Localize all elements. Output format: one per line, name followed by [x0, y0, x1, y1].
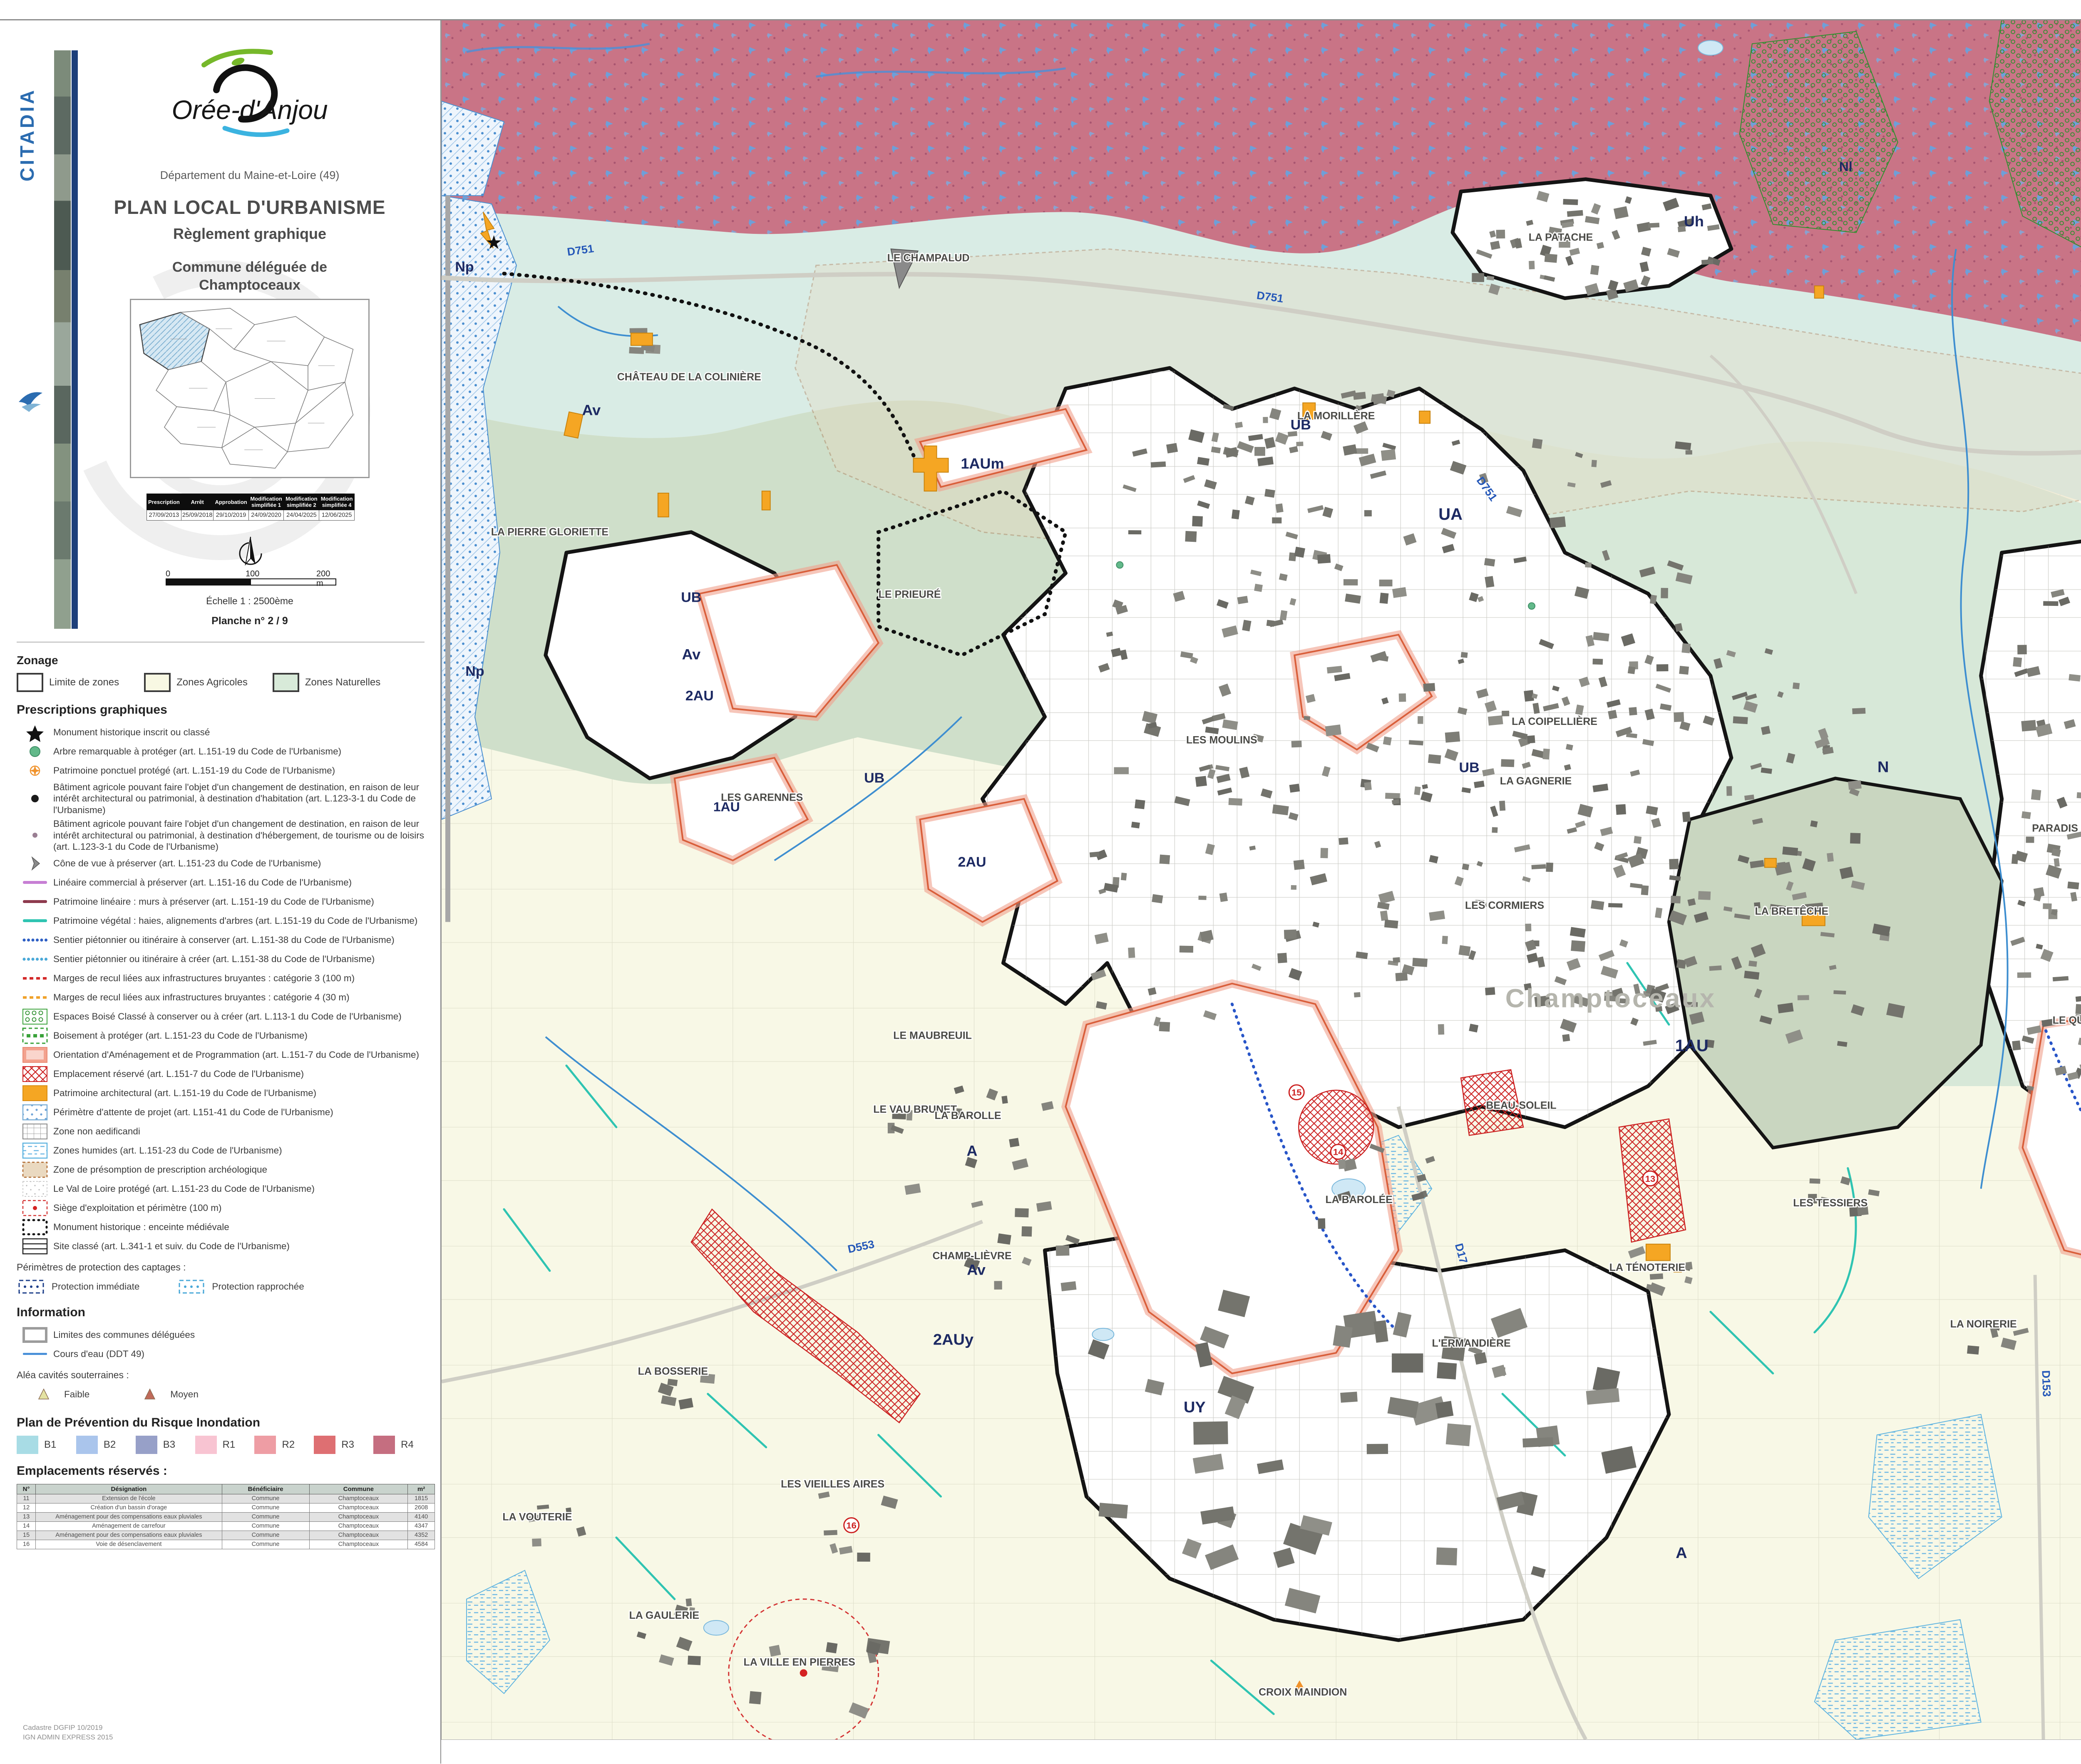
building — [532, 1538, 541, 1547]
building — [1641, 885, 1649, 895]
building — [1380, 593, 1389, 604]
legend-label: Sentier piétonnier ou itinéraire à créer… — [53, 952, 375, 966]
building — [1648, 223, 1659, 228]
map-label: Nl — [1839, 159, 1853, 174]
map-label: UY — [1184, 1398, 1206, 1416]
zonage-item: Limite de zones — [17, 673, 119, 692]
building — [1379, 580, 1393, 586]
building — [2011, 854, 2019, 864]
legend-label: Périmètre d'attente de projet (art. L151… — [53, 1105, 333, 1119]
building — [1131, 821, 1140, 828]
building — [667, 1379, 678, 1386]
scale-text: Échelle 1 : 2500ème — [92, 595, 408, 607]
building — [1193, 1422, 1228, 1445]
building — [1128, 948, 1135, 958]
building — [1591, 900, 1604, 910]
building — [1135, 799, 1145, 809]
emplacements-header: Emplacements réservés : — [17, 1464, 433, 1478]
map-label: LA BAROLÉE — [1325, 1194, 1392, 1206]
legend-symbol-box-er — [17, 1064, 53, 1084]
ppri-item: R2 — [254, 1436, 314, 1454]
map-label: D153 — [2039, 1370, 2053, 1397]
building — [1850, 833, 1860, 844]
building — [1166, 443, 1178, 454]
legend-item: Siège d'exploitation et périmètre (100 m… — [17, 1198, 433, 1218]
legend-item: Arbre remarquable à protéger (art. L.151… — [17, 742, 433, 761]
building — [1289, 784, 1300, 793]
building — [1527, 735, 1535, 743]
legend-symbol-box-archeo — [17, 1160, 53, 1179]
building — [1277, 953, 1287, 963]
legend-item: Patrimoine linéaire : murs à préserver (… — [17, 892, 433, 911]
legend-label: Emplacement réservé (art. L.151-7 du Cod… — [53, 1067, 304, 1081]
building — [1726, 786, 1732, 796]
legend-item: Zone de présomption de prescription arch… — [17, 1160, 433, 1179]
building — [1354, 992, 1361, 997]
legend-symbol-box-oap — [17, 1045, 53, 1064]
legend-item: Sentier piétonnier ou itinéraire à conse… — [17, 930, 433, 950]
legend-label: Arbre remarquable à protéger (art. L.151… — [53, 744, 341, 758]
map-label: LA GAGNERIE — [1500, 776, 1572, 787]
map-label: Np — [455, 259, 474, 275]
legend-symbol-box-bois — [17, 1026, 53, 1045]
building — [1229, 798, 1242, 806]
ppri-item: B3 — [136, 1436, 195, 1454]
map-label: CHAMP-LIÈVRE — [932, 1250, 1011, 1262]
building — [1318, 1218, 1325, 1229]
building — [2077, 792, 2081, 799]
building — [1264, 489, 1275, 498]
building — [1437, 1362, 1457, 1379]
building — [1748, 960, 1757, 967]
building — [1392, 1353, 1423, 1372]
department-line: Département du Maine-et-Loire (49) — [92, 169, 408, 182]
building — [1254, 584, 1263, 592]
building — [1782, 846, 1798, 856]
legend-symbol-cone — [17, 854, 53, 873]
map-label: UB — [1459, 760, 1480, 776]
legend-symbol-line — [17, 892, 53, 911]
building — [1338, 837, 1348, 845]
building — [1001, 1096, 1008, 1104]
legend-item: Monument historique : enceinte médiévale — [17, 1218, 433, 1237]
building — [1532, 439, 1543, 449]
building — [1798, 995, 1809, 1000]
ppri-item: B1 — [17, 1436, 76, 1454]
legend-symbol-star — [17, 723, 53, 742]
legend-symbol-line — [17, 911, 53, 930]
building — [1438, 1024, 1444, 1035]
map-label: UB — [681, 590, 701, 605]
building — [1458, 945, 1470, 956]
divider — [17, 642, 425, 643]
building — [1709, 965, 1722, 971]
building — [1393, 957, 1400, 963]
building — [686, 1598, 692, 1606]
building — [1492, 827, 1497, 833]
rev-value: 24/09/2020 — [248, 510, 284, 521]
map-label: LA VILLE EN PIERRES — [744, 1657, 855, 1668]
map-label: UA — [1438, 505, 1463, 523]
legend-item: Cours d'eau (DDT 49) — [17, 1345, 433, 1364]
building — [1325, 724, 1341, 736]
map-label: 16 — [846, 1520, 856, 1531]
building — [1529, 261, 1535, 270]
citadia-logo: CITADIA — [8, 44, 46, 219]
building — [1562, 1034, 1570, 1042]
er-header: m² — [408, 1484, 435, 1494]
building — [1827, 853, 1834, 862]
legend-body: Zonage Limite de zonesZones AgricolesZon… — [17, 650, 433, 1549]
legend-item: Sentier piétonnier ou itinéraire à créer… — [17, 950, 433, 969]
map-label: 1AU — [1675, 1037, 1709, 1055]
citadia-bird-icon — [17, 385, 46, 414]
building — [1114, 767, 1129, 774]
building — [1296, 442, 1303, 446]
legend-item: Cône de vue à préserver (art. L.151-23 d… — [17, 854, 433, 873]
legend-symbol-box-fill — [17, 1084, 53, 1103]
er-row: 12Création d'un bassin d'orageCommuneCha… — [17, 1503, 435, 1512]
building — [1151, 461, 1166, 468]
legend-label: Orientation d'Aménagement et de Programm… — [53, 1048, 419, 1062]
building — [1304, 716, 1311, 720]
building — [1585, 562, 1592, 568]
legend-symbol-line — [17, 873, 53, 892]
building — [1488, 715, 1503, 726]
legend-label: Zone non aedificandi — [53, 1124, 140, 1138]
zonage-swatches: Limite de zonesZones AgricolesZones Natu… — [17, 673, 433, 692]
building — [1021, 1226, 1032, 1237]
legend-symbol-box-siege — [17, 1198, 53, 1218]
building — [1522, 1437, 1553, 1448]
information-list: Limites des communes déléguéesCours d'ea… — [17, 1325, 433, 1364]
map-label: 2AUy — [933, 1331, 973, 1348]
alea-item: Moyen — [135, 1385, 199, 1404]
map-label: LES CORMIERS — [1465, 900, 1544, 911]
ppri-item: R3 — [314, 1436, 373, 1454]
building — [1848, 780, 1862, 790]
building — [1195, 776, 1207, 786]
scale-bar: 0 100 200 m — [166, 569, 336, 586]
building — [1338, 1159, 1346, 1169]
legend-label: Siège d'exploitation et périmètre (100 m… — [53, 1201, 222, 1215]
legend-item: Marges de recul liées aux infrastructure… — [17, 969, 433, 988]
legend-item: Marges de recul liées aux infrastructure… — [17, 988, 433, 1007]
building — [1608, 903, 1622, 908]
building — [1185, 531, 1197, 542]
map-canvas[interactable]: ★ D751D751D751D17D17D553D153 Champtoceau… — [442, 19, 2081, 1739]
building — [1015, 1208, 1029, 1217]
building — [1833, 990, 1846, 995]
legend-label: Linéaire commercial à préserver (art. L.… — [53, 876, 352, 889]
building — [1634, 836, 1641, 844]
map-label: 2AU — [958, 854, 986, 870]
building — [1698, 891, 1711, 900]
building — [1056, 1245, 1070, 1256]
er-row: 13Aménagement pour des compensations eau… — [17, 1512, 435, 1521]
building — [1446, 1424, 1471, 1446]
legend-label: Bâtiment agricole pouvant faire l'objet … — [53, 817, 433, 853]
building — [1542, 749, 1550, 759]
building — [1198, 896, 1206, 900]
north-arrow — [234, 535, 267, 570]
building — [997, 1233, 1011, 1245]
map-label: L'ERMANDIÈRE — [1432, 1337, 1511, 1349]
legend-label: Sentier piétonnier ou itinéraire à conse… — [53, 933, 395, 947]
legend-symbol-box-grid — [17, 1122, 53, 1141]
building — [1608, 710, 1617, 719]
legend-label: Le Val de Loire protégé (art. L.151-23 d… — [53, 1182, 315, 1196]
building — [1681, 643, 1691, 653]
svg-text:Orée-d'Anjou: Orée-d'Anjou — [171, 95, 328, 125]
legend-symbol-box-commune — [17, 1325, 53, 1345]
prescriptions-header: Prescriptions graphiques — [17, 703, 433, 717]
legend-label: Marges de recul liées aux infrastructure… — [53, 990, 350, 1004]
map-label: LE PRIEURÉ — [879, 589, 941, 600]
building — [1399, 693, 1406, 702]
building — [1291, 885, 1296, 890]
er-header: Désignation — [36, 1484, 222, 1494]
er-row: 16Voie de désenclavementCommuneChamptoce… — [17, 1540, 435, 1549]
er-header: N° — [17, 1484, 36, 1494]
building — [1343, 579, 1358, 586]
alea-item: Faible — [29, 1385, 89, 1404]
building — [1152, 894, 1163, 903]
legend-item: Bâtiment agricole pouvant faire l'objet … — [17, 780, 433, 817]
building — [1180, 946, 1193, 953]
er-row: 15Aménagement pour des compensations eau… — [17, 1531, 435, 1540]
map-bottom-margin — [441, 1739, 2081, 1764]
er-header: Commune — [309, 1484, 408, 1494]
legend-label: Patrimoine végétal : haies, alignements … — [53, 914, 417, 928]
map-label: 13 — [1645, 1174, 1655, 1184]
map-label: LE QUARTERON — [2053, 1015, 2081, 1026]
building — [2043, 903, 2051, 909]
building — [2067, 881, 2079, 889]
building — [1462, 863, 1470, 870]
map-label: A — [1676, 1544, 1687, 1561]
information-header: Information — [17, 1305, 433, 1320]
building — [2017, 972, 2031, 978]
location-inset-map — [130, 299, 370, 478]
map-label: LA TÉNOTERIE — [1609, 1262, 1685, 1273]
map-area[interactable]: ★ D751D751D751D17D17D553D153 Champtoceau… — [441, 19, 2081, 1739]
building — [749, 1691, 762, 1704]
legend-item: Patrimoine architectural (art. L.151-19 … — [17, 1084, 433, 1103]
legend-item: Zone non aedificandi — [17, 1122, 433, 1141]
building — [1275, 504, 1283, 513]
commune-title: Commune déléguée de Champtoceaux — [92, 258, 408, 294]
building — [1272, 517, 1281, 523]
building — [1263, 417, 1268, 423]
building — [1661, 588, 1668, 598]
page-top-margin — [0, 0, 2081, 20]
legend-label: Marges de recul liées aux infrastructure… — [53, 971, 355, 985]
legend-symbol-box-humide — [17, 1141, 53, 1160]
ppri-header: Plan de Prévention du Risque Inondation — [17, 1416, 433, 1430]
citadia-wordmark: CITADIA — [16, 88, 38, 181]
map-label: 1AU — [713, 799, 740, 814]
building — [1445, 732, 1460, 743]
map-label: BEAU-SOLEIL — [1486, 1100, 1556, 1111]
legend-item: Monument historique inscrit ou classé — [17, 723, 433, 742]
building — [1284, 930, 1296, 939]
building — [1531, 864, 1546, 869]
legend-item: Espaces Boisé Classé à conserver ou à cr… — [17, 1007, 433, 1026]
building — [1367, 1444, 1388, 1454]
building — [2021, 720, 2036, 732]
legend-label: Cours d'eau (DDT 49) — [53, 1347, 144, 1361]
building — [1546, 863, 1553, 872]
building — [1291, 741, 1302, 748]
photo-strip — [54, 50, 71, 629]
building — [1852, 708, 1865, 714]
building — [2076, 1004, 2081, 1015]
building — [1160, 855, 1170, 864]
map-label: UB — [1291, 417, 1311, 433]
legend-item: Patrimoine végétal : haies, alignements … — [17, 911, 433, 930]
legend-label: Monument historique : enceinte médiévale — [53, 1220, 229, 1234]
map-label: LE MAUBREUIL — [893, 1030, 972, 1042]
building — [857, 1553, 870, 1562]
rev-header: Modification simplifiée 2 — [284, 494, 319, 510]
building — [1525, 923, 1531, 931]
building — [1502, 711, 1509, 717]
oree-anjou-logo: Orée-d'Anjou — [92, 40, 408, 152]
building — [2012, 1040, 2021, 1050]
map-label: CHÂTEAU DE LA COLINIÈRE — [617, 371, 761, 383]
map-label: LA PATACHE — [1529, 232, 1593, 243]
legend-symbol-box-enceinte — [17, 1218, 53, 1237]
building — [1128, 530, 1141, 534]
building — [826, 1642, 837, 1653]
legend-symbol-box-attente — [17, 1103, 53, 1122]
building — [1412, 958, 1428, 967]
rev-header: Prescription — [147, 494, 181, 510]
building — [688, 1656, 701, 1665]
building — [1793, 682, 1800, 689]
zonage-header: Zonage — [17, 654, 433, 667]
building — [1545, 253, 1557, 263]
legend-label: Zones humides (art. L.151-23 du Code de … — [53, 1144, 282, 1157]
building — [1461, 652, 1468, 658]
legend-label: Zone de présomption de prescription arch… — [53, 1163, 267, 1176]
building — [2013, 657, 2022, 667]
building — [1396, 973, 1408, 981]
building — [1364, 782, 1372, 790]
map-label: 2AU — [685, 688, 714, 704]
legend-symbol-tree — [17, 742, 53, 761]
building — [1254, 447, 1265, 456]
page-title: PLAN LOCAL D'URBANISME — [92, 196, 408, 218]
legend-item: Orientation d'Aménagement et de Programm… — [17, 1045, 433, 1064]
building — [1674, 712, 1684, 722]
rev-header: Arrêt — [181, 494, 214, 510]
building — [1317, 554, 1331, 563]
building — [1159, 1022, 1170, 1032]
legend-symbol-dots — [17, 930, 53, 950]
zonage-item: Zones Agricoles — [144, 673, 248, 692]
map-label: 15 — [1291, 1087, 1301, 1098]
legend-item: Patrimoine ponctuel protégé (art. L.151-… — [17, 761, 433, 780]
building — [1592, 659, 1603, 665]
legend-item: Le Val de Loire protégé (art. L.151-23 d… — [17, 1179, 433, 1198]
map-label: LE CHAMPALUD — [887, 253, 970, 264]
map-label: PARADIS — [2032, 823, 2078, 834]
legend-symbol-dotsm — [17, 826, 53, 845]
map-label: LES VIEILLES AIRES — [781, 1479, 884, 1490]
building — [1485, 987, 1495, 995]
rev-value: 12/06/2025 — [319, 510, 355, 521]
rev-value: 27/09/2013 — [147, 510, 181, 521]
building — [1380, 911, 1388, 921]
building — [1671, 896, 1681, 903]
captages-row: Protection immédiateProtection rapproché… — [17, 1277, 433, 1296]
sheet-number: Planche n° 2 / 9 — [92, 615, 408, 627]
building — [1121, 873, 1127, 881]
er-row: 14Aménagement de carrefourCommuneChampto… — [17, 1521, 435, 1531]
building — [1474, 1352, 1487, 1365]
building — [1571, 940, 1585, 952]
ppri-item: R1 — [195, 1436, 255, 1454]
revision-table: PrescriptionArrêtApprobationModification… — [147, 494, 355, 521]
legend-label: Monument historique inscrit ou classé — [53, 725, 210, 739]
building — [1733, 716, 1748, 724]
alea-row: FaibleMoyen — [29, 1385, 433, 1404]
legend-label: Espaces Boisé Classé à conserver ou à cr… — [53, 1010, 402, 1023]
building — [769, 1645, 781, 1657]
legend-item: Linéaire commercial à préserver (art. L.… — [17, 873, 433, 892]
captages-header: Périmètres de protection des captages : — [17, 1262, 433, 1273]
building — [2069, 674, 2081, 682]
map-label: LA BAROLLE — [935, 1110, 1001, 1121]
building — [994, 1281, 1002, 1290]
building — [1485, 576, 1494, 588]
map-label: LA GAULERIE — [629, 1610, 699, 1621]
map-label: LA BRETÊCHE — [1755, 906, 1828, 917]
building — [2031, 789, 2041, 800]
building — [1501, 759, 1514, 767]
building — [1294, 547, 1305, 558]
rev-header: Approbation — [214, 494, 248, 510]
captage-item: Protection rapprochée — [177, 1277, 304, 1296]
building — [2043, 601, 2058, 606]
building — [1423, 683, 1435, 692]
legend-symbol-dashes — [17, 988, 53, 1007]
building — [1682, 811, 1691, 822]
building — [2054, 858, 2060, 867]
map-label: 14 — [1333, 1147, 1343, 1157]
building — [1590, 265, 1599, 275]
legend-item: Boisement à protéger (art. L.151-23 du C… — [17, 1026, 433, 1045]
legend-symbol-box-ebc — [17, 1007, 53, 1026]
rev-value: 29/10/2019 — [214, 510, 248, 521]
building — [1496, 230, 1505, 238]
legend-item: Emplacement réservé (art. L.151-7 du Cod… — [17, 1064, 433, 1084]
page-subtitle: Règlement graphique — [92, 225, 408, 243]
legend-label: Patrimoine linéaire : murs à préserver (… — [53, 895, 374, 908]
building — [1810, 820, 1818, 827]
building — [1484, 558, 1495, 566]
building — [1436, 1548, 1458, 1566]
map-label: Av — [582, 402, 601, 419]
map-label: LA COIPELLIÈRE — [1512, 716, 1597, 727]
building — [1435, 1401, 1454, 1418]
data-attribution: Cadastre DGFIP 10/2019 IGN ADMIN EXPRESS… — [23, 1723, 113, 1742]
map-label: LES TESSIERS — [1793, 1198, 1867, 1209]
building — [2021, 811, 2031, 819]
building — [1563, 199, 1578, 205]
